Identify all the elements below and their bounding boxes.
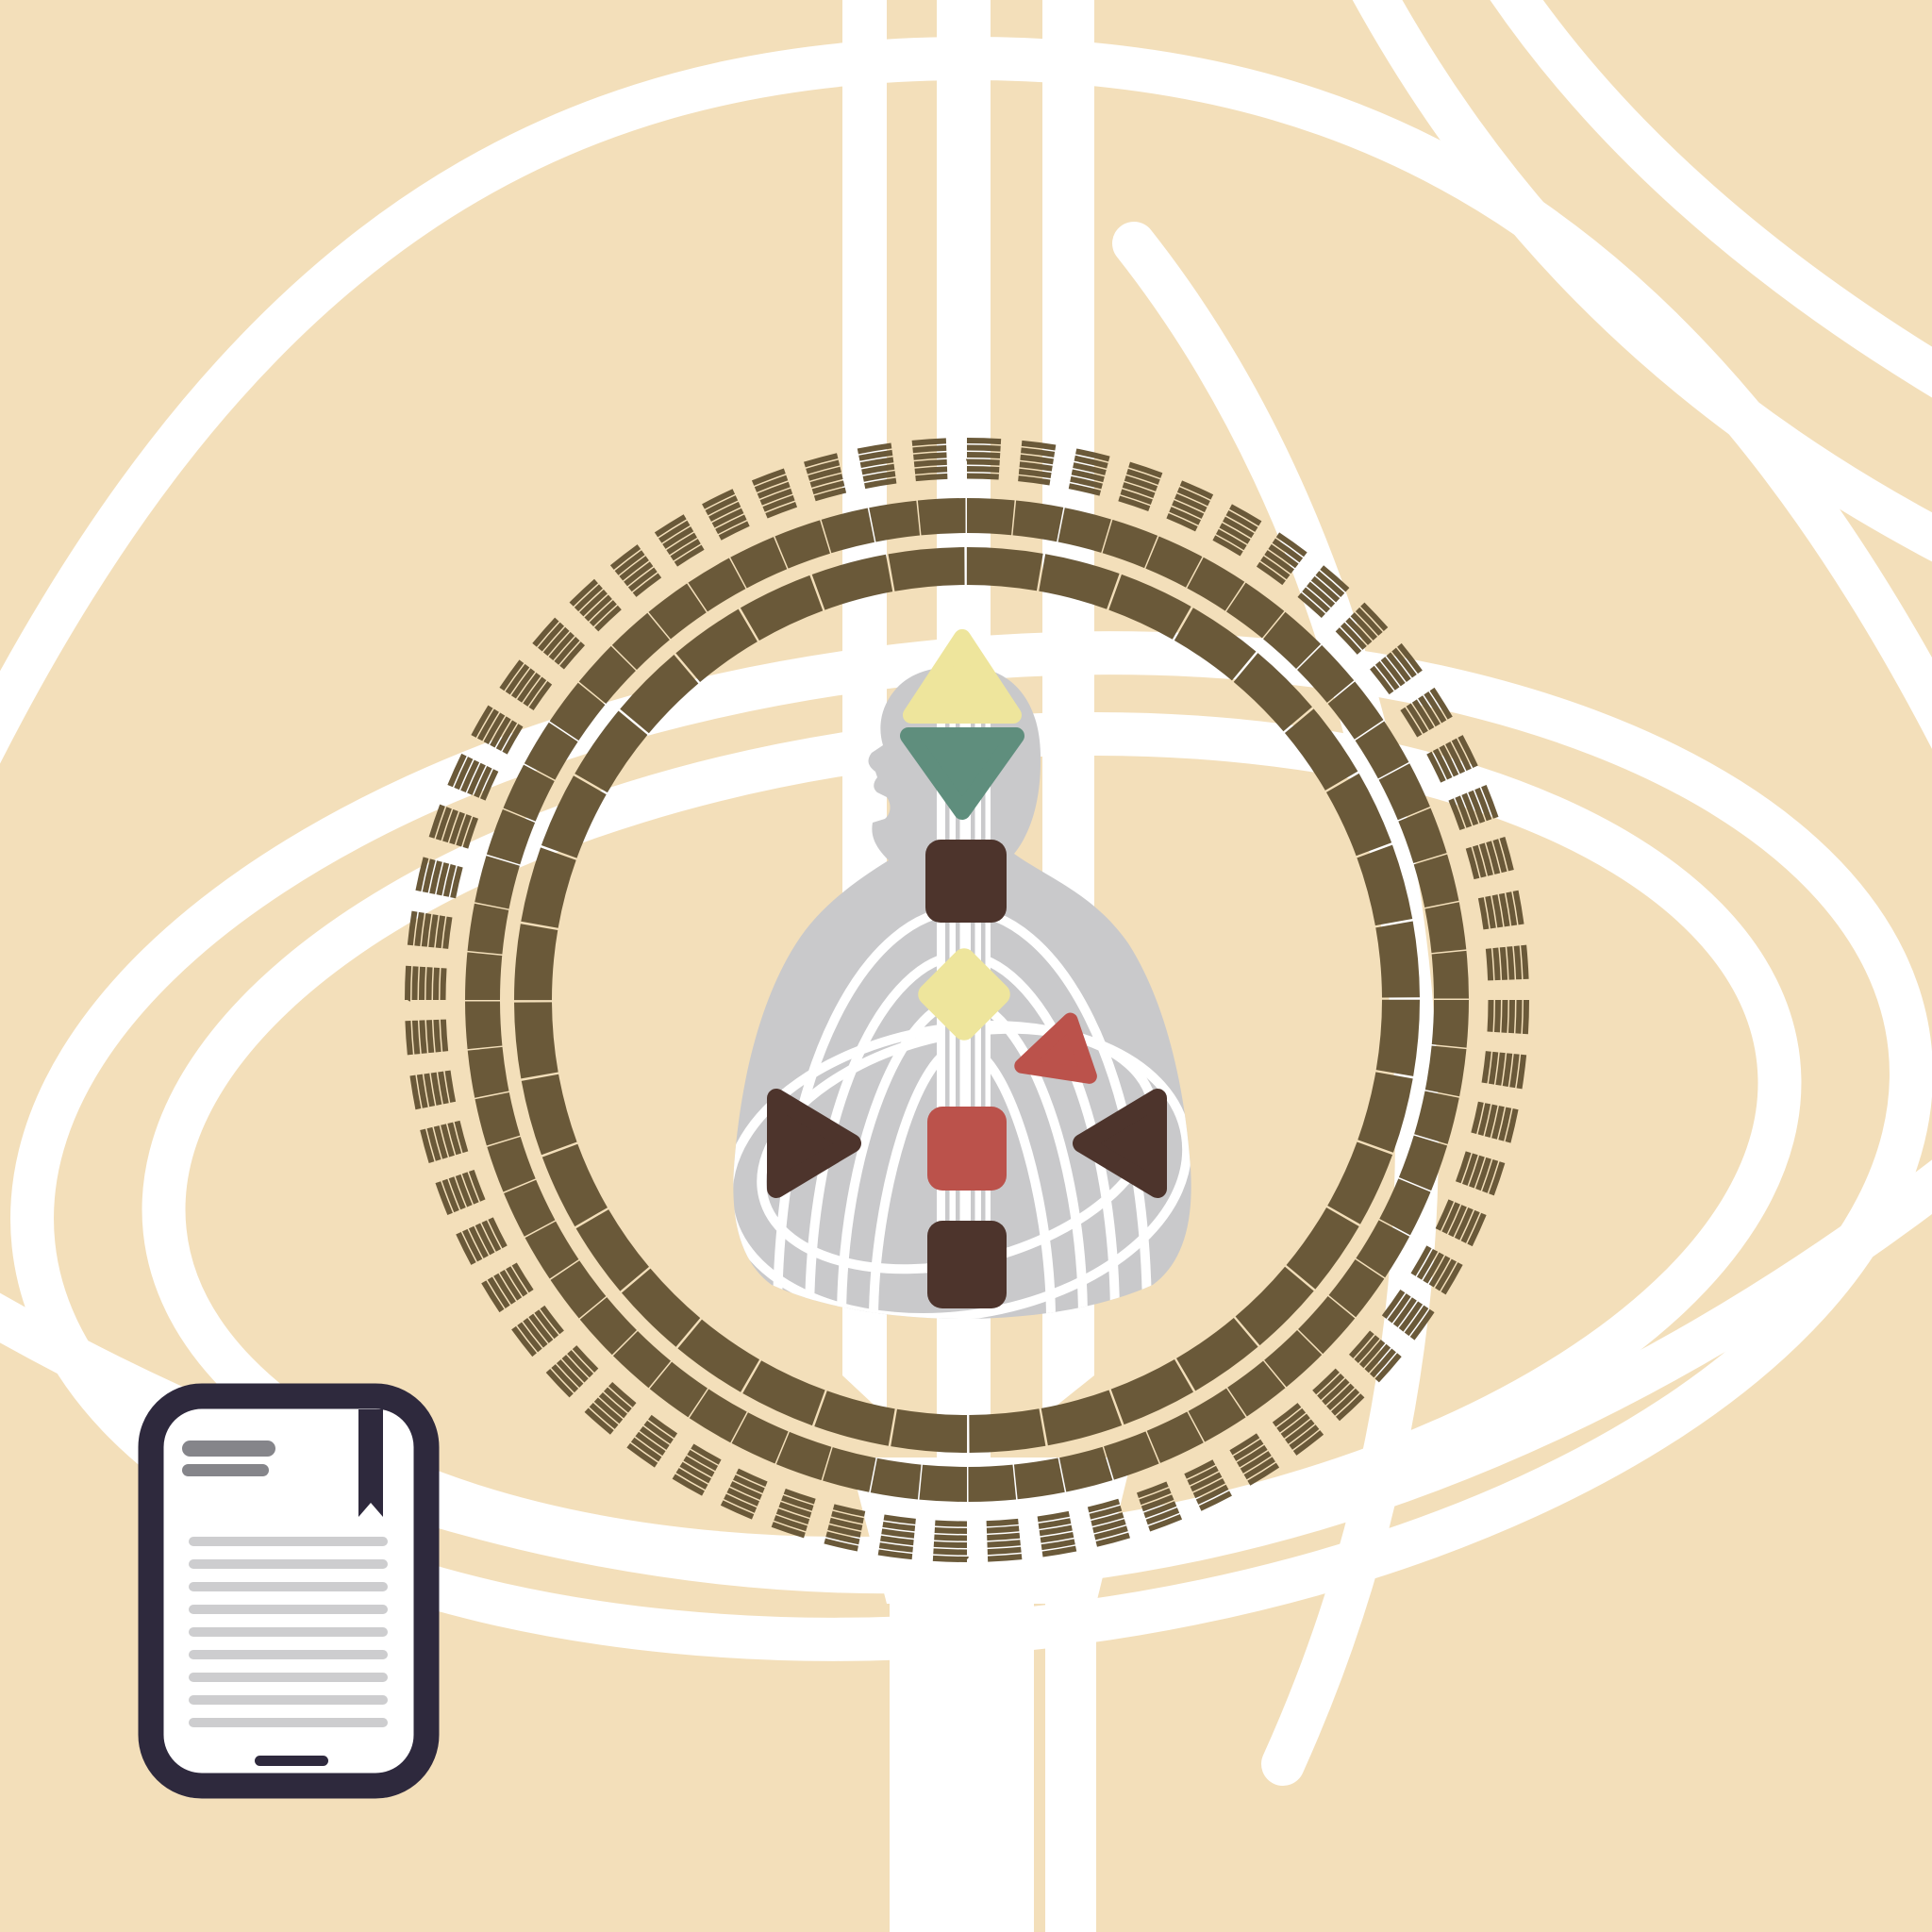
document-body-line-9 bbox=[189, 1718, 388, 1727]
lower-bar-right bbox=[1045, 1557, 1096, 1932]
illustration-canvas bbox=[0, 0, 1932, 1932]
root-center bbox=[927, 1221, 1007, 1308]
throat-center bbox=[925, 840, 1007, 923]
document-body-line-1 bbox=[189, 1537, 388, 1546]
document-body-line-5 bbox=[189, 1627, 388, 1637]
document-body-line-4 bbox=[189, 1605, 388, 1614]
document-body-line-2 bbox=[189, 1559, 388, 1569]
document-body-line-8 bbox=[189, 1695, 388, 1705]
document-header-line-1 bbox=[182, 1441, 275, 1457]
lower-bar-mid bbox=[987, 1557, 1034, 1932]
document-body-line-3 bbox=[189, 1582, 388, 1591]
document-footer-line bbox=[255, 1756, 328, 1766]
lower-bar-left bbox=[890, 1557, 938, 1932]
bookmark-ribbon bbox=[358, 1409, 383, 1517]
document-icon bbox=[151, 1396, 426, 1786]
document-body-line-6 bbox=[189, 1650, 388, 1659]
document-body-line-7 bbox=[189, 1673, 388, 1682]
document-header-line-2 bbox=[182, 1464, 269, 1476]
sacral-center bbox=[927, 1107, 1007, 1191]
illustration bbox=[0, 0, 1932, 1932]
